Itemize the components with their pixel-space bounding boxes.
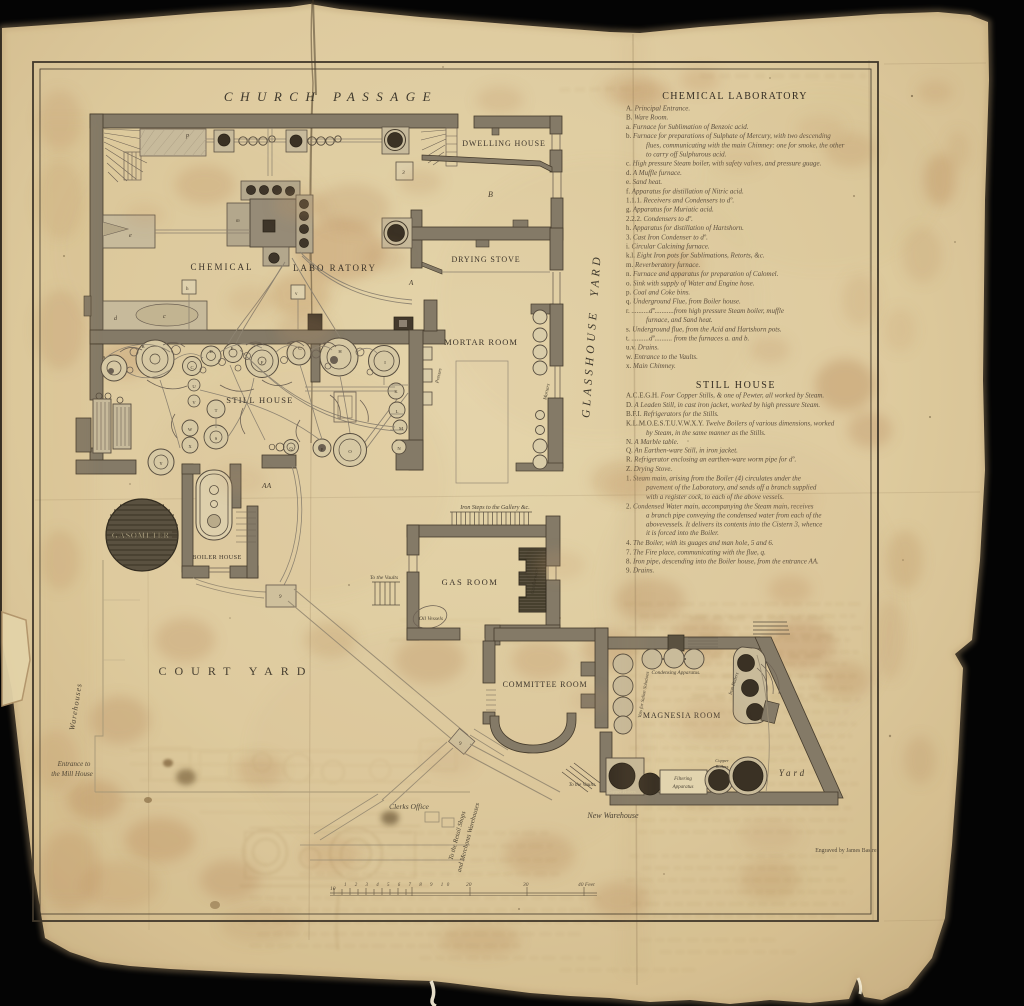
svg-text:COURT YARD: COURT YARD — [159, 664, 314, 678]
svg-text:DWELLING HOUSE: DWELLING HOUSE — [462, 139, 545, 148]
svg-text:P: P — [321, 447, 324, 452]
svg-text:20: 20 — [466, 882, 472, 888]
svg-text:Copper: Copper — [715, 758, 729, 763]
svg-text:4. The Boiler, with its guages: 4. The Boiler, with its guages and man h… — [626, 539, 774, 547]
svg-text:n. Furnace and apparatus for p: n. Furnace and apparatus for preparation… — [626, 270, 779, 278]
svg-text:by Steam, in the same manner a: by Steam, in the same manner as the Stil… — [646, 429, 766, 437]
svg-text:10: 10 — [330, 886, 336, 892]
svg-text:K.L.M.O.E.S.T.U.V.W.X.Y. Twelv: K.L.M.O.E.S.T.U.V.W.X.Y. Twelve Boilers … — [626, 420, 835, 428]
svg-text:e: e — [129, 233, 132, 239]
svg-text:B: B — [488, 190, 493, 199]
svg-text:COMMITTEE ROOM: COMMITTEE ROOM — [503, 680, 588, 689]
svg-text:D. A Leaden Still, in cast iro: D. A Leaden Still, in cast iron jacket, … — [626, 401, 820, 409]
svg-text:CHURCH PASSAGE: CHURCH PASSAGE — [224, 89, 438, 104]
svg-text:to carry off Sulphurous acid.: to carry off Sulphurous acid. — [646, 151, 727, 159]
svg-text:S: S — [215, 436, 218, 441]
svg-text:p: p — [185, 133, 189, 139]
svg-text:Iron Steps to the Gallery &c.: Iron Steps to the Gallery &c. — [459, 505, 529, 511]
svg-text:GAS ROOM: GAS ROOM — [442, 577, 499, 587]
svg-text:F: F — [261, 360, 264, 365]
svg-text:To the Vaults: To the Vaults — [370, 575, 398, 581]
svg-text:M: M — [399, 426, 403, 431]
svg-text:r. ..........dº...........from: r. ..........dº...........from high pres… — [626, 307, 784, 315]
svg-text:8. Iron pipe, descending into: 8. Iron pipe, descending into the Boiler… — [626, 557, 819, 565]
svg-text:CHEMICAL LABORATORY: CHEMICAL LABORATORY — [662, 91, 808, 102]
svg-text:c: c — [163, 314, 166, 320]
svg-text:Boilers: Boilers — [716, 764, 729, 769]
svg-text:BOILER HOUSE: BOILER HOUSE — [192, 554, 241, 561]
svg-text:Yard: Yard — [779, 768, 807, 778]
svg-text:DRYING STOVE: DRYING STOVE — [451, 255, 520, 264]
svg-text:furnace, and Sand heat.: furnace, and Sand heat. — [646, 316, 713, 324]
svg-text:E: E — [231, 346, 234, 351]
svg-text:k.l. Eight Iron pots for Subli: k.l. Eight Iron pots for Sublimations, R… — [626, 252, 765, 260]
svg-text:L: L — [396, 409, 399, 414]
svg-text:R. Refrigerator enclosing an e: R. Refrigerator enclosing an earthen-war… — [626, 456, 797, 464]
svg-text:40 Feet: 40 Feet — [578, 881, 595, 888]
svg-text:MORTAR ROOM: MORTAR ROOM — [444, 337, 518, 347]
svg-text:Filtering: Filtering — [673, 777, 692, 782]
svg-text:Engraved by James Basire.: Engraved by James Basire. — [815, 848, 878, 854]
svg-text:A.C.E.G.H. Four Copper Stills,: A.C.E.G.H. Four Copper Stills, & one of … — [626, 391, 824, 399]
svg-text:abovevessels. It delivers its: abovevessels. It delivers its contents i… — [646, 520, 822, 528]
svg-text:CHEMICAL: CHEMICAL — [191, 262, 254, 272]
svg-text:Oil Vessels: Oil Vessels — [419, 616, 443, 622]
svg-text:s. Underground flue, from the: s. Underground flue, from the Acid and H… — [626, 325, 782, 333]
svg-text:W: W — [188, 427, 193, 432]
svg-text:STILL HOUSE: STILL HOUSE — [226, 395, 294, 405]
svg-text:Apparatus: Apparatus — [672, 785, 694, 790]
svg-text:B: B — [141, 344, 144, 349]
svg-text:30: 30 — [522, 882, 529, 888]
svg-text:A: A — [408, 279, 414, 287]
svg-text:it is forced into the Boiler.: it is forced into the Boiler. — [646, 529, 719, 537]
svg-text:1 2 3 4 5 6 7 8 9 10: 1 2 3 4 5 6 7 8 9 10 — [344, 883, 453, 888]
svg-text:7. The Fire place, communicati: 7. The Fire place, communicating with th… — [626, 548, 766, 556]
svg-text:LABO RATORY: LABO RATORY — [293, 263, 377, 273]
svg-text:T: T — [215, 408, 218, 413]
svg-text:GASOMETER: GASOMETER — [112, 531, 170, 540]
svg-text:m: m — [236, 219, 240, 224]
svg-text:STILL HOUSE: STILL HOUSE — [696, 380, 776, 391]
svg-text:Condensing Apparatus.: Condensing Apparatus. — [652, 670, 701, 676]
svg-text:To the Vaults: To the Vaults — [569, 782, 596, 788]
svg-text:Clerks Office: Clerks Office — [389, 802, 429, 811]
svg-text:C: C — [190, 365, 193, 370]
